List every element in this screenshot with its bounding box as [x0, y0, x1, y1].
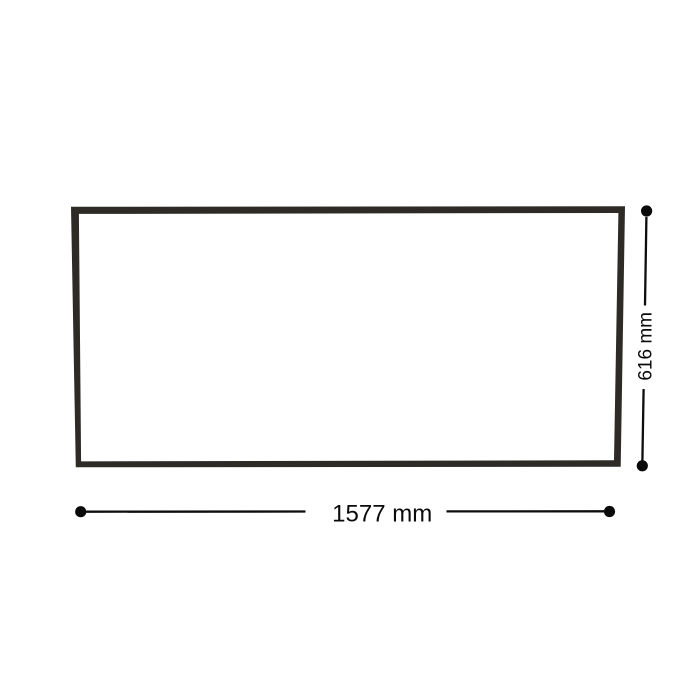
svg-text:1577 mm: 1577 mm	[332, 500, 432, 527]
svg-text:616 mm: 616 mm	[635, 312, 656, 381]
